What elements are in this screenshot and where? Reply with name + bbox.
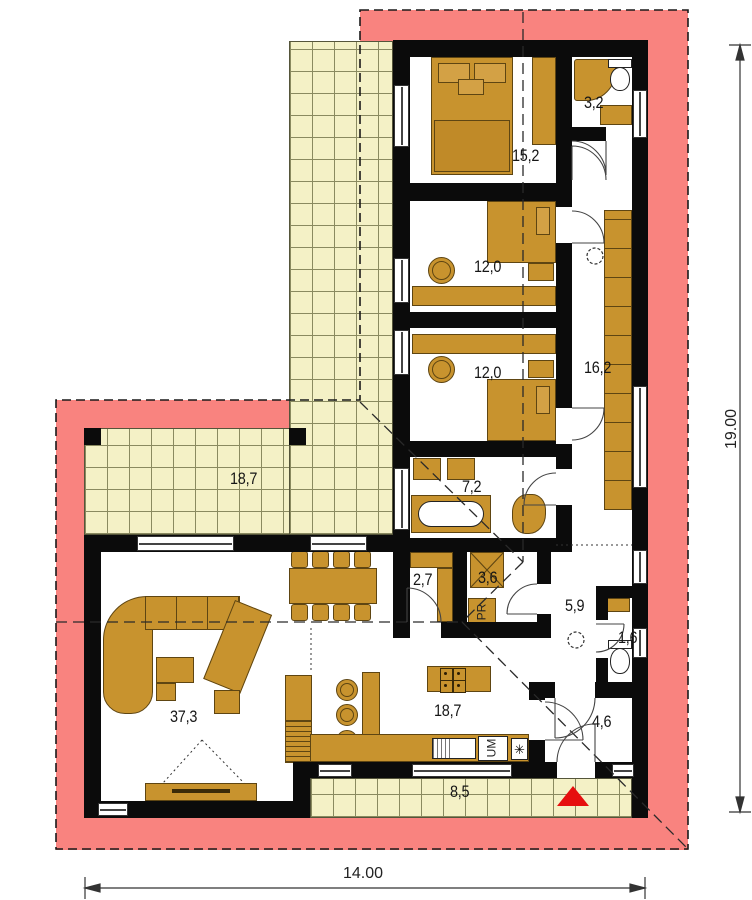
nightstand (528, 360, 554, 378)
roof-overhang-right (645, 10, 688, 850)
room-label-bedroom-3: 12,0 (474, 363, 501, 383)
wall-bath32-left (556, 41, 572, 183)
pillow (458, 79, 484, 95)
wall-hall-bottom-a (545, 682, 555, 698)
kitchen-sink (432, 738, 476, 759)
door-gap (556, 408, 572, 444)
wall-bath32-bottom (572, 127, 606, 141)
dining-table (289, 568, 377, 604)
dining-chair (333, 604, 350, 621)
wall-laundry-bottom-b (441, 622, 537, 638)
dishwasher-label: UM (484, 739, 498, 758)
door-gap (557, 762, 595, 778)
room-label-wc: 1,6 (618, 628, 637, 648)
window (394, 468, 409, 530)
floor-plan: PR UM ✳ (0, 0, 752, 900)
porch-tiles (310, 778, 632, 818)
room-label-laundry: 3,6 (478, 568, 497, 588)
window (412, 764, 512, 777)
roof-overhang-left-top (84, 400, 289, 428)
closet-shelf-top (410, 552, 453, 568)
coffee-table-small (156, 683, 176, 701)
roof-overhang-top (360, 10, 688, 41)
bar-stool (336, 679, 358, 701)
room-label-bedroom-2: 12,0 (474, 257, 501, 277)
window (318, 764, 352, 777)
dining-chair (333, 551, 350, 568)
bar-stool (336, 704, 358, 726)
bath-cabinet (600, 105, 632, 125)
door-gap (596, 620, 608, 658)
pillow (536, 386, 550, 414)
window (612, 764, 634, 777)
window (394, 85, 409, 147)
fridge-cabinet (285, 675, 312, 721)
dining-chair (312, 604, 329, 621)
room-label-bathroom-main: 7,2 (462, 477, 481, 497)
ottoman (214, 690, 240, 714)
wardrobe-master (532, 57, 556, 145)
roof-overhang-bottom (56, 818, 688, 850)
tv (172, 789, 230, 793)
room-label-corridor: 16,2 (584, 358, 611, 378)
cooktop-island (427, 666, 491, 692)
door-gap (556, 207, 572, 243)
room-label-bedroom-master: 15,2 (512, 146, 539, 166)
dining-chair (291, 551, 308, 568)
room-label-living: 37,3 (170, 707, 197, 727)
window (310, 536, 367, 551)
wall-top (393, 40, 648, 57)
dining-chair (354, 604, 371, 621)
desk-3 (412, 334, 556, 354)
terrace-pillar-left (84, 428, 101, 445)
oven-drawers (285, 721, 312, 763)
roof-overhang-left (56, 400, 85, 818)
toilet-bowl (610, 67, 630, 91)
toilet-corner (512, 494, 546, 534)
wall-left (84, 535, 101, 818)
desk-chair-2 (428, 257, 455, 284)
room-label-terrace: 18,7 (230, 469, 257, 489)
window (633, 550, 647, 584)
closet-shelf-right (437, 568, 453, 622)
wall-hall-bottom-b (595, 682, 648, 698)
room-label-hall: 5,9 (565, 596, 584, 616)
dishwasher: UM (478, 736, 508, 761)
wall-entry-left-b (529, 740, 545, 762)
pillow (536, 207, 550, 235)
dining-chair (312, 551, 329, 568)
dining-chair (291, 604, 308, 621)
room-label-bathroom-top: 3,2 (584, 93, 603, 113)
wall-laundry-right-b (537, 614, 551, 638)
vent-appliance: ✳ (511, 738, 528, 760)
desk-chair-3 (428, 356, 455, 383)
wall-laundry-right-a (537, 552, 551, 584)
wall-bed3-bottom (410, 441, 572, 457)
dimension-width: 14.00 (343, 865, 383, 883)
coffee-table (156, 657, 194, 683)
sink (413, 458, 441, 480)
door-gap (556, 469, 572, 505)
vent-symbol: ✳ (514, 742, 525, 757)
window (394, 330, 409, 375)
terrace-door (137, 536, 234, 551)
nightstand (528, 263, 554, 281)
window (633, 90, 647, 138)
blanket (434, 120, 510, 172)
room-label-porch: 8,5 (450, 782, 469, 802)
room-label-kitchen: 18,7 (434, 701, 461, 721)
wall-entry-left-a (529, 682, 545, 700)
window (394, 258, 409, 303)
dimension-depth: 19.00 (723, 409, 741, 449)
desk-2 (412, 286, 556, 306)
toilet-bowl (610, 648, 630, 674)
room-label-closet: 2,7 (413, 570, 432, 590)
terrace-tiles-vertical (289, 41, 393, 535)
terrace-tiles-horizontal (84, 428, 290, 535)
wall-bedrooms-mid (410, 312, 556, 328)
window (633, 386, 647, 488)
window (98, 803, 128, 816)
wall-laundry-bottom-a (393, 622, 405, 638)
dining-chair (354, 551, 371, 568)
terrace-pillar-right (289, 428, 306, 445)
washing-machine-label: PR (474, 604, 488, 621)
wall-bath72-bottom (410, 538, 560, 552)
room-label-entry: 4,6 (592, 712, 611, 732)
bathtub-basin (418, 501, 484, 527)
wall-bed1-bottom (410, 183, 572, 201)
